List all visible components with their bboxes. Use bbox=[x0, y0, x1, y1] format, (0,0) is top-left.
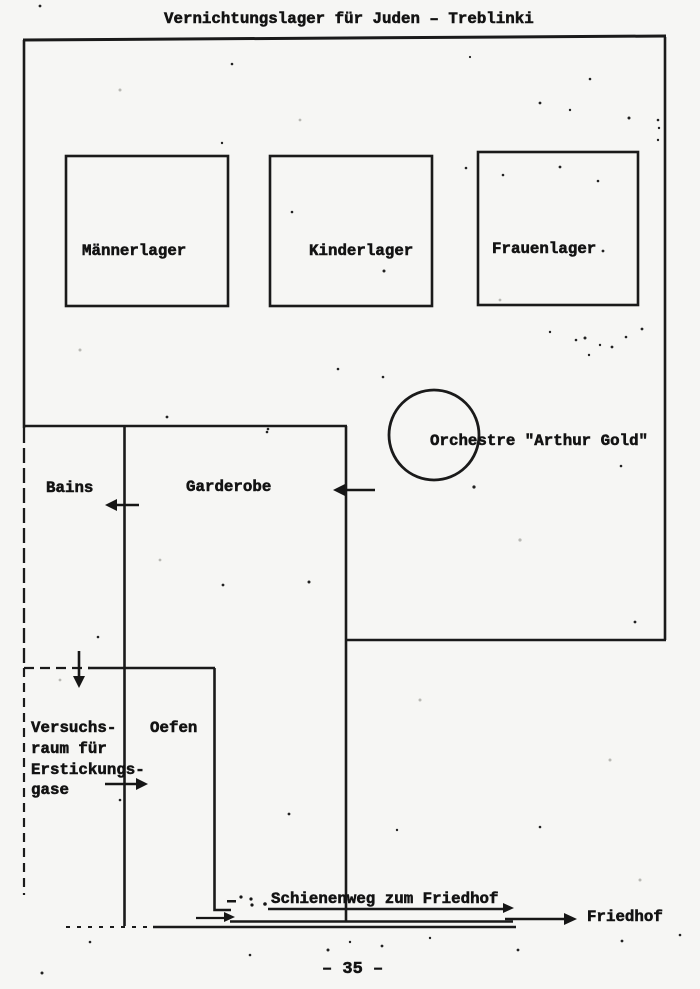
svg-text:Oefen: Oefen bbox=[150, 719, 197, 737]
svg-text:Schienenweg zum Friedhof: Schienenweg zum Friedhof bbox=[271, 890, 499, 908]
svg-text:raum für: raum für bbox=[31, 740, 107, 758]
svg-text:Garderobe: Garderobe bbox=[186, 478, 271, 496]
svg-text:Bains: Bains bbox=[46, 479, 93, 497]
svg-text:Kinderlager: Kinderlager bbox=[309, 242, 413, 260]
svg-text:– 35 –: – 35 – bbox=[322, 960, 383, 979]
svg-text:Friedhof: Friedhof bbox=[587, 908, 663, 926]
svg-text:Frauenlager: Frauenlager bbox=[492, 240, 596, 258]
svg-text:Versuchs-: Versuchs- bbox=[31, 719, 116, 737]
svg-text:Vernichtungslager für Juden –: Vernichtungslager für Juden – Treblinki bbox=[164, 10, 534, 28]
svg-text:Orchestre "Arthur Gold": Orchestre "Arthur Gold" bbox=[430, 432, 648, 450]
svg-text:Männerlager: Männerlager bbox=[82, 242, 186, 260]
svg-text:Erstickungs-: Erstickungs- bbox=[31, 761, 145, 779]
svg-text:gase: gase bbox=[31, 781, 69, 799]
